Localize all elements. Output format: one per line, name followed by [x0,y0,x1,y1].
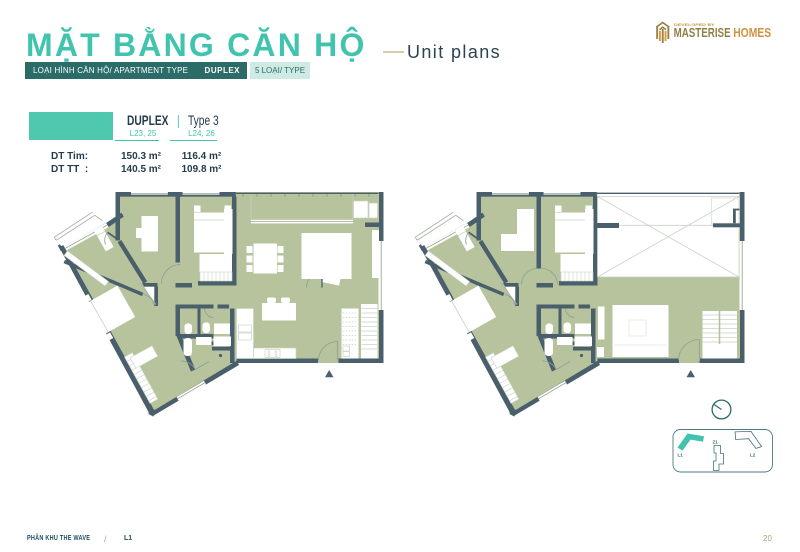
svg-text:L1: L1 [678,453,684,458]
svg-text:L2: L2 [750,453,756,458]
svg-text:Z1: Z1 [713,440,719,445]
